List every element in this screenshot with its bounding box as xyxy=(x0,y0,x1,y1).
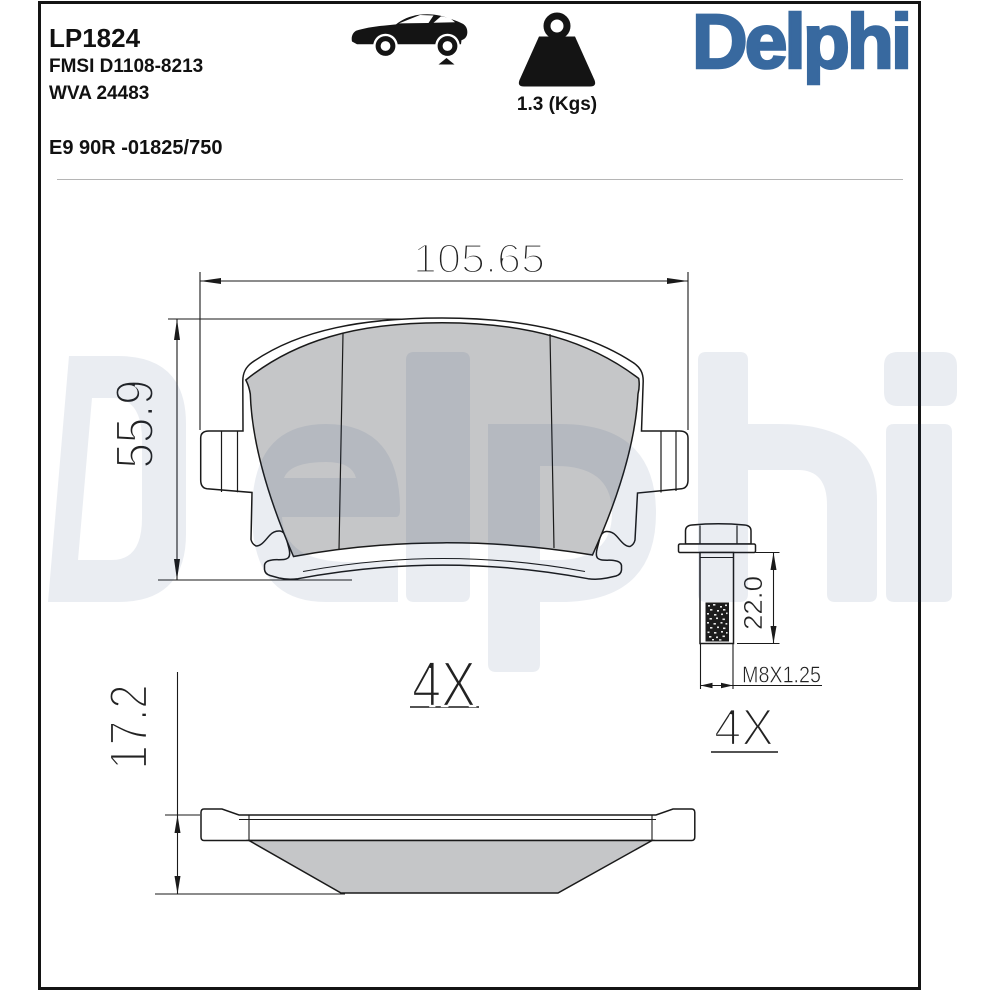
svg-text:M8X1.25: M8X1.25 xyxy=(742,662,821,688)
svg-text:17.2: 17.2 xyxy=(99,685,159,770)
svg-text:55.9: 55.9 xyxy=(105,380,165,469)
svg-text:4X: 4X xyxy=(412,648,476,720)
svg-text:22.0: 22.0 xyxy=(738,576,768,630)
svg-text:105.65: 105.65 xyxy=(413,236,545,282)
svg-text:4X: 4X xyxy=(714,699,774,757)
